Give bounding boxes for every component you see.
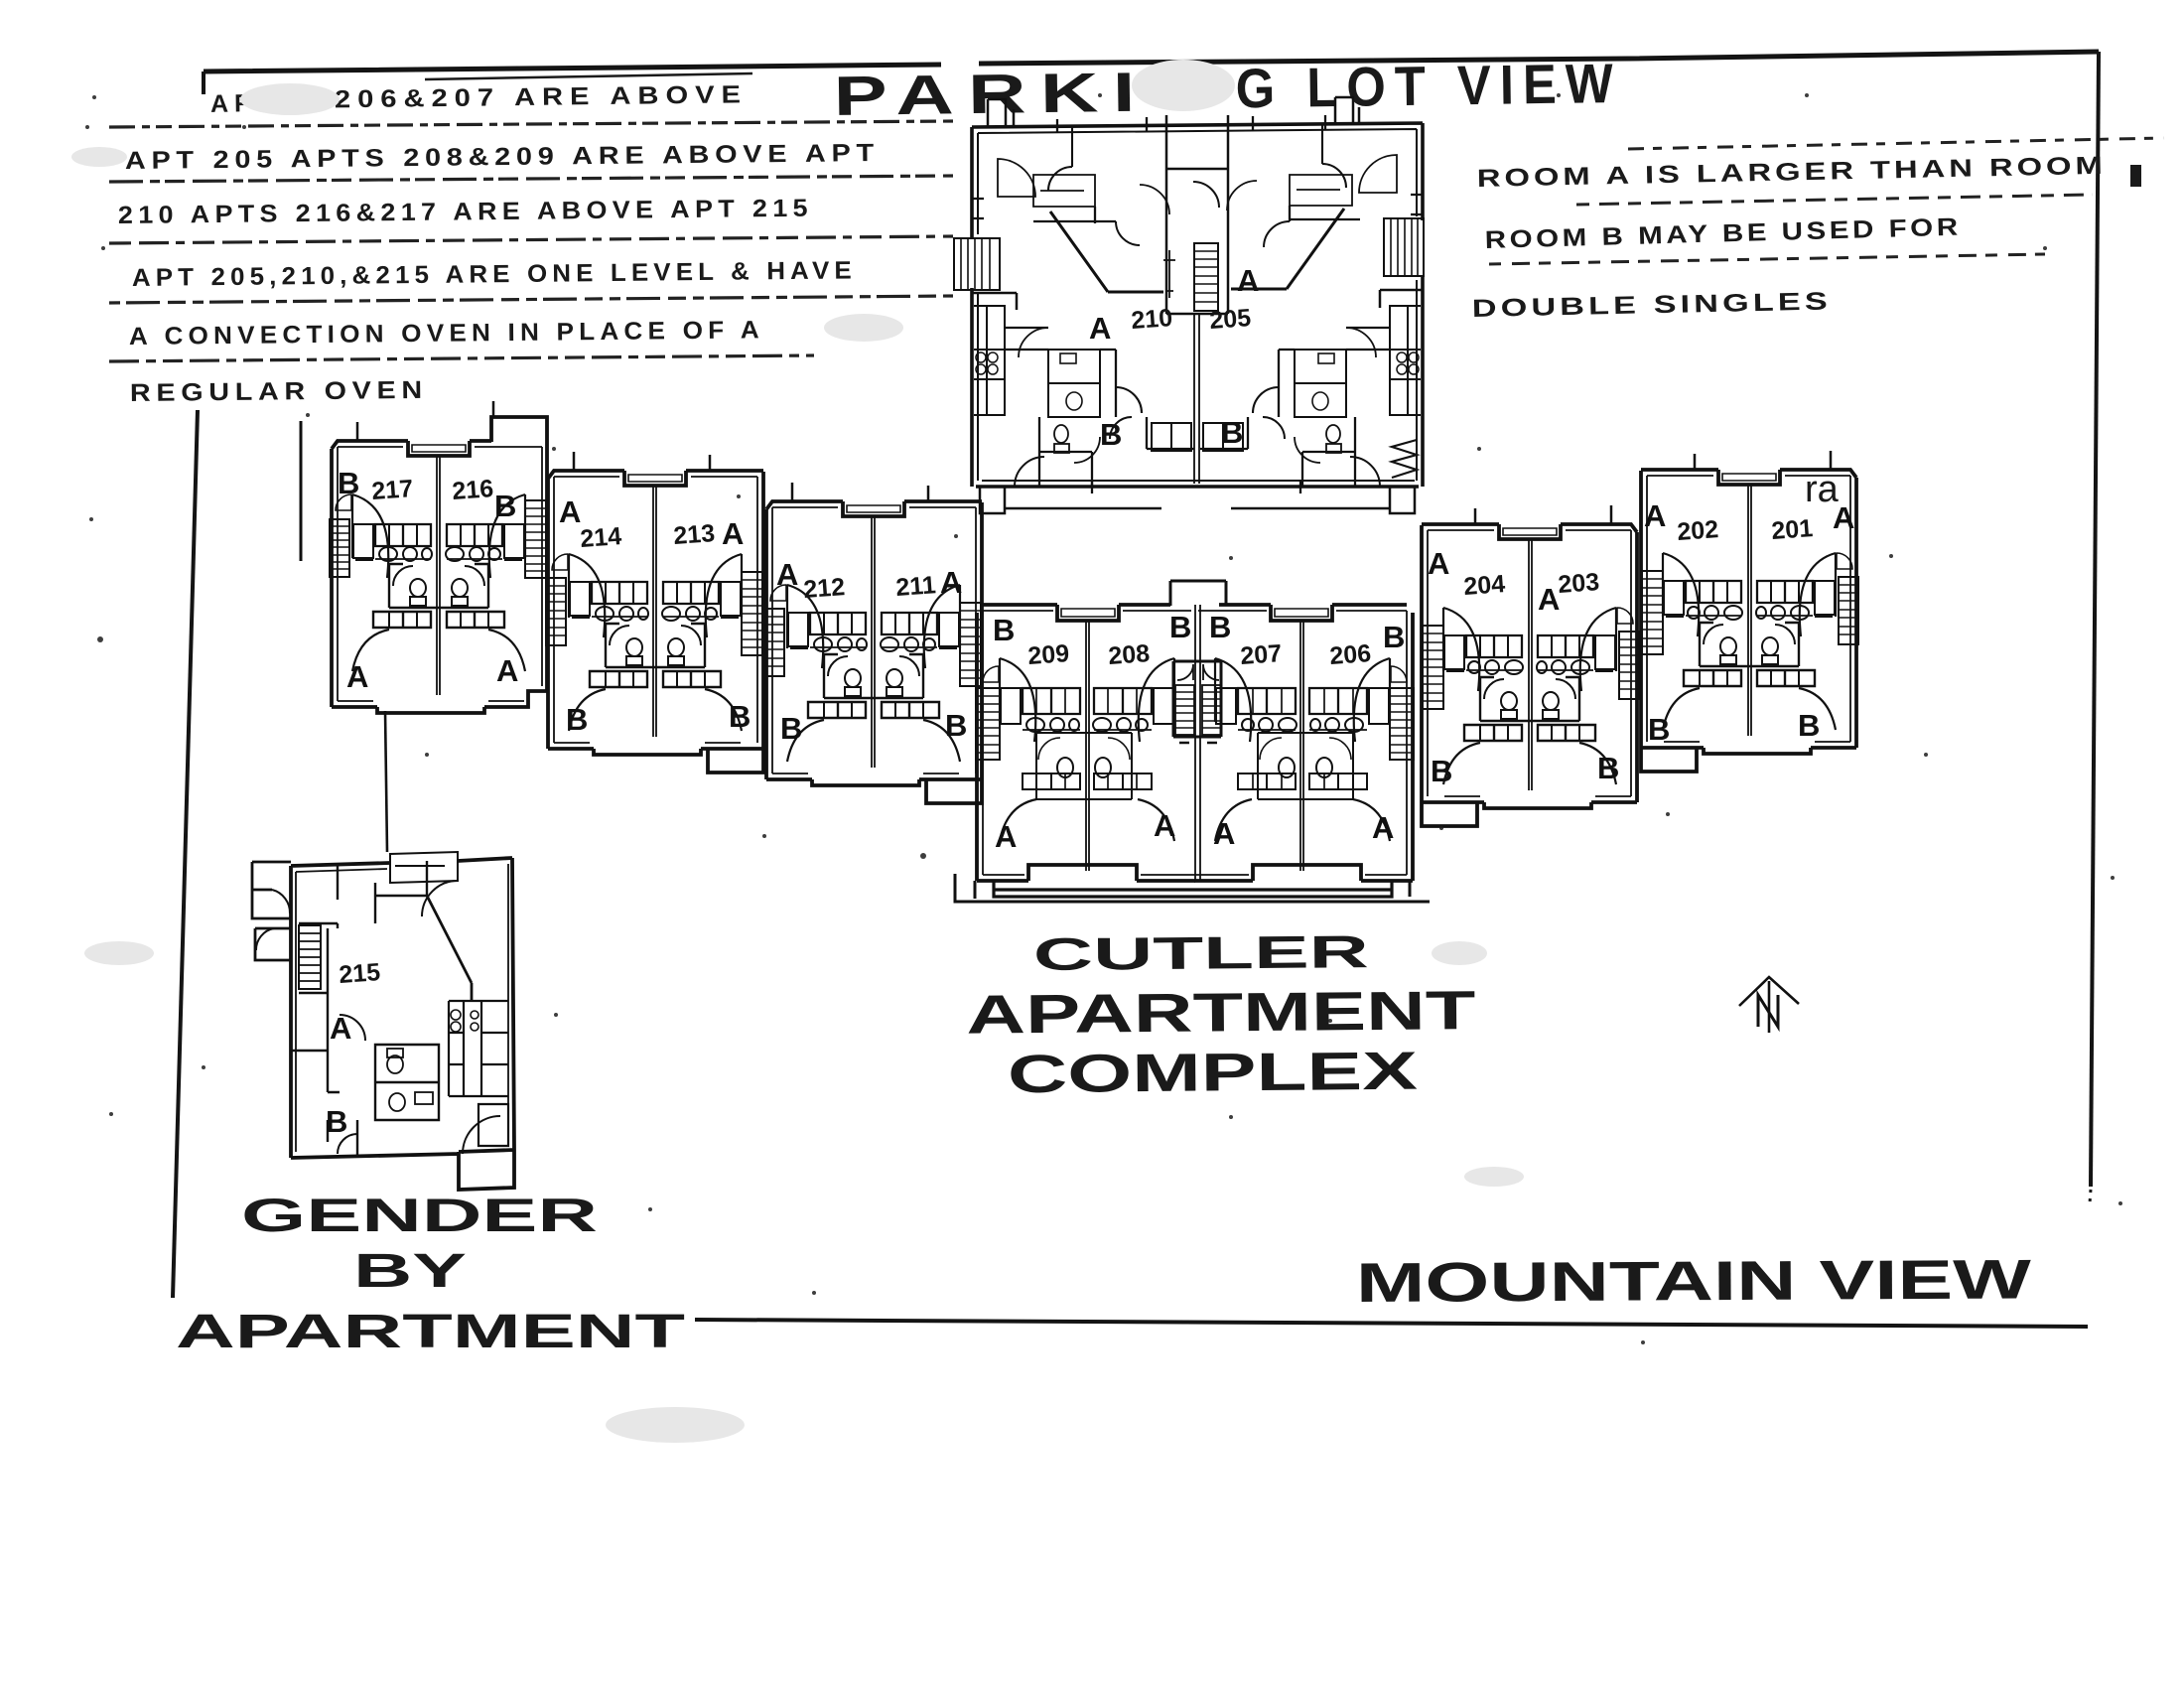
svg-text:212: 212 — [802, 573, 846, 604]
svg-text:209: 209 — [1026, 639, 1070, 670]
svg-text:MOUNTAIN VIEW: MOUNTAIN VIEW — [1356, 1247, 2032, 1314]
svg-text:A: A — [1428, 546, 1449, 581]
svg-text:204: 204 — [1462, 570, 1506, 601]
svg-text:203: 203 — [1557, 568, 1600, 599]
svg-text:210: 210 — [1130, 304, 1173, 335]
svg-text:206&207 ARE ABOVE: 206&207 ARE ABOVE — [335, 80, 748, 113]
svg-text:215: 215 — [338, 958, 381, 989]
svg-text:CUTLER: CUTLER — [1033, 925, 1369, 980]
svg-text:B: B — [338, 466, 359, 500]
svg-text:ROOM B MAY BE USED FOR: ROOM B MAY BE USED FOR — [1484, 213, 1962, 254]
svg-text:B: B — [1383, 620, 1405, 654]
svg-text:B: B — [326, 1104, 347, 1139]
svg-text:B: B — [566, 702, 588, 737]
svg-text:A: A — [330, 1011, 351, 1046]
svg-text:205: 205 — [1208, 304, 1252, 335]
svg-text:A: A — [1372, 810, 1394, 845]
svg-text:211: 211 — [894, 571, 936, 602]
svg-text:A: A — [559, 494, 581, 529]
svg-text:B: B — [945, 708, 967, 743]
svg-text:201: 201 — [1770, 514, 1814, 545]
svg-text:A: A — [496, 653, 518, 688]
svg-text:APARTMENT: APARTMENT — [176, 1306, 685, 1358]
svg-text:BY: BY — [353, 1245, 467, 1298]
svg-text:A: A — [776, 557, 798, 592]
svg-text:217: 217 — [370, 475, 414, 505]
svg-text:208: 208 — [1107, 639, 1151, 670]
svg-text:B: B — [780, 711, 802, 746]
svg-text:A: A — [1089, 311, 1111, 346]
svg-text:214: 214 — [579, 522, 622, 553]
svg-text:ROOM A IS LARGER THAN ROOM: ROOM A IS LARGER THAN ROOM — [1477, 152, 2107, 193]
svg-text:GENDER: GENDER — [241, 1189, 598, 1241]
svg-text:B: B — [1100, 417, 1122, 452]
svg-text:APARTMENT: APARTMENT — [966, 979, 1476, 1045]
svg-text:B: B — [729, 699, 751, 734]
svg-text:A: A — [1154, 808, 1175, 843]
svg-text:B: B — [1169, 610, 1191, 644]
svg-text:210 APTS 216&217 ARE ABOVE APT: 210 APTS 216&217 ARE ABOVE APT 215 — [118, 195, 813, 229]
svg-text:PARKI: PARKI — [833, 61, 1150, 127]
svg-text:A: A — [346, 659, 368, 694]
svg-text:B: B — [1431, 754, 1452, 788]
svg-text:G LOT VIEW: G LOT VIEW — [1235, 52, 1622, 119]
svg-text:B: B — [1798, 708, 1820, 743]
svg-text:DOUBLE SINGLES: DOUBLE SINGLES — [1472, 287, 1833, 323]
svg-text:A: A — [1644, 498, 1666, 533]
svg-text:A: A — [722, 516, 744, 551]
svg-text:B: B — [993, 613, 1015, 647]
svg-text:A: A — [940, 565, 962, 600]
svg-text:B: B — [1209, 610, 1231, 644]
svg-text:B: B — [1648, 712, 1670, 747]
svg-text:A: A — [1213, 816, 1235, 851]
svg-text:A: A — [1538, 582, 1560, 617]
svg-text:202: 202 — [1676, 515, 1719, 546]
svg-text:B: B — [1221, 415, 1243, 450]
svg-text:APT 205,210,&215 ARE ONE LEVEL: APT 205,210,&215 ARE ONE LEVEL & HAVE — [132, 256, 857, 292]
svg-text:B: B — [494, 489, 516, 523]
svg-text:B: B — [1597, 751, 1619, 785]
svg-text:APT 205 APTS 208&209 ARE ABOVE: APT 205 APTS 208&209 ARE ABOVE APT — [125, 139, 880, 175]
svg-text:A: A — [1237, 263, 1259, 298]
svg-text:207: 207 — [1239, 639, 1283, 670]
svg-text:A: A — [995, 819, 1017, 854]
svg-text:216: 216 — [451, 475, 494, 505]
svg-text:REGULAR OVEN: REGULAR OVEN — [130, 376, 428, 407]
svg-text:A CONVECTION OVEN IN PLACE OF: A CONVECTION OVEN IN PLACE OF A — [129, 316, 764, 351]
svg-text:COMPLEX: COMPLEX — [1008, 1042, 1419, 1105]
svg-text:213: 213 — [672, 519, 716, 550]
svg-text:ra: ra — [1805, 469, 1840, 510]
svg-text:206: 206 — [1328, 639, 1372, 670]
